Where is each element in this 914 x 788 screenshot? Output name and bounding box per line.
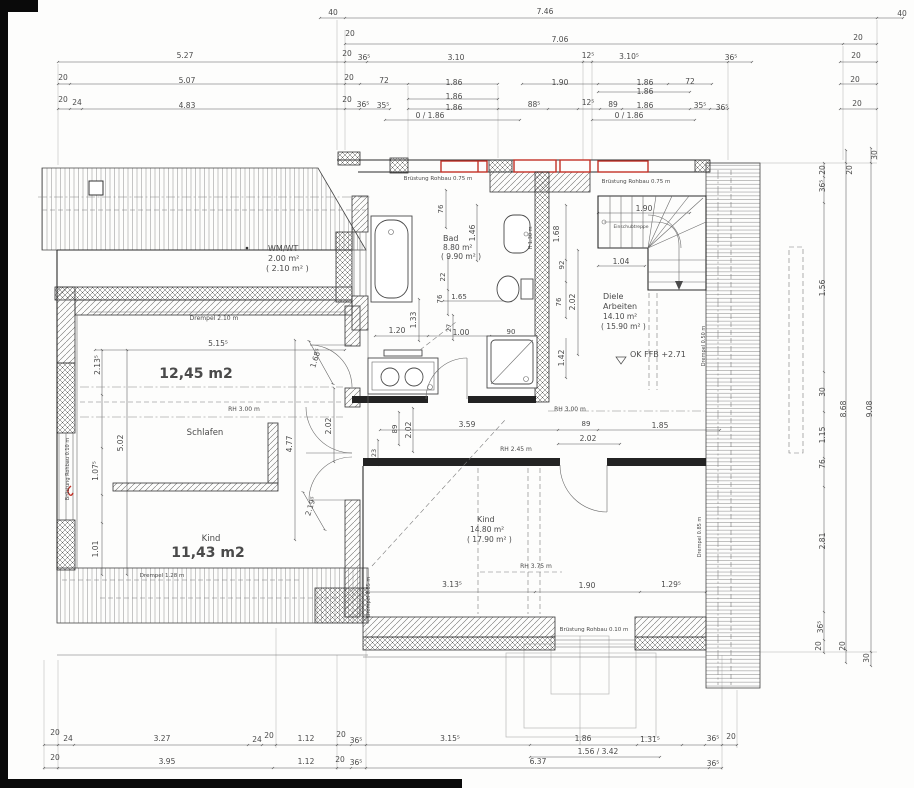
room-area-gross-kind-right: ( 17.90 m² )	[467, 535, 512, 544]
note-bruestung-010-left: Brüstung Rohbau 0.10 m	[65, 438, 71, 501]
room-area-gross-wmwt: ( 2.10 m² )	[266, 264, 309, 273]
dim-746: 7.46	[537, 7, 554, 16]
dim-190: 1.90	[579, 581, 596, 590]
note-bruestung-075-left: Brüstung Rohbau 0.75 m	[404, 176, 473, 182]
room-label-kind-right: Kind	[477, 515, 495, 524]
chimney	[89, 181, 103, 195]
dim-72: 72	[685, 77, 695, 86]
dim-365: 36⁵	[707, 734, 720, 743]
dim-100: 1.00	[453, 328, 470, 337]
dim-3155: 3.15⁵	[440, 734, 460, 743]
dim-125: 12⁵	[582, 51, 595, 60]
dim-30: 30	[818, 387, 827, 397]
dim-112: 1.12	[298, 757, 315, 766]
roof-band-top-left	[42, 168, 366, 250]
dim-190: 1.90	[552, 78, 569, 87]
dim-310: 3.10	[448, 53, 465, 62]
dim-92: 92	[558, 261, 566, 270]
dim-20: 20	[852, 99, 862, 108]
dim-133: 1.33	[409, 311, 418, 328]
dim-20: 20	[342, 49, 352, 58]
dim-355: 35⁵	[377, 101, 390, 110]
dim-186: 1.86	[637, 101, 654, 110]
dim-190-stair: 1.90	[636, 204, 653, 213]
dim-146: 1.46	[468, 224, 477, 241]
dim-868: 8.68	[839, 400, 848, 417]
note-drempel-210: Drempel 2.10 m	[190, 315, 239, 322]
note-drempel-085-left: Drempel 0.85 m	[366, 577, 372, 618]
bathtub	[371, 216, 412, 302]
level-annotation: OK FFB +2.71	[630, 350, 686, 359]
dim-76: 76	[436, 294, 444, 303]
dim-20: 20	[853, 33, 863, 42]
dim-142: 1.42	[557, 349, 566, 366]
dim-20: 20	[344, 73, 354, 82]
dim-2135: 2.13⁵	[93, 355, 102, 375]
dim-186: 1.86	[446, 92, 463, 101]
dim-3105: 3.10⁵	[619, 52, 639, 61]
washbasin	[504, 215, 530, 253]
dim-202: 2.02	[580, 434, 597, 443]
dim-365: 36⁵	[350, 758, 363, 767]
dim-30: 30	[870, 150, 879, 160]
dim-3135: 3.13⁵	[442, 580, 462, 589]
dim-365: 36⁵	[357, 100, 370, 109]
dim-186: 1.86	[575, 734, 592, 743]
dim-20: 20	[264, 731, 274, 740]
dim-20: 20	[335, 755, 345, 764]
room-label-arbeiten: Arbeiten	[603, 302, 637, 311]
dim-20: 20	[342, 95, 352, 104]
dim-327: 3.27	[154, 734, 171, 743]
dim-22: 22	[439, 273, 447, 282]
dim-202: 2.02	[404, 421, 413, 438]
room-area-gross-bad: ( 9.90 m² )	[441, 252, 481, 261]
dim-1075: 1.07⁵	[91, 461, 100, 481]
dim-365: 36⁵	[358, 53, 371, 62]
dim-89: 89	[391, 425, 399, 434]
dim-20: 20	[845, 165, 854, 175]
dim-156-342: 1.56 / 3.42	[578, 747, 619, 756]
dim-112: 1.12	[298, 734, 315, 743]
dim-186: 1.86	[446, 78, 463, 87]
dim-5155: 5.15⁵	[208, 339, 228, 348]
dim-20: 20	[814, 641, 823, 651]
dim-156: 1.56	[818, 279, 827, 296]
dim-186: 1.86	[637, 87, 654, 96]
dim-477: 4.77	[285, 435, 294, 452]
dim-101: 1.01	[91, 540, 100, 557]
dim-24: 24	[252, 735, 262, 744]
room-label-wmwt: WM/WT	[268, 244, 298, 253]
note-drempel-128: Drempel 1.28 m	[140, 573, 185, 579]
dim-165: 1.65	[451, 293, 467, 301]
dim-507: 5.07	[179, 76, 196, 85]
dim-1295: 1.29⁵	[661, 580, 681, 589]
dim-20: 20	[345, 29, 355, 38]
dim-202: 2.02	[324, 417, 333, 434]
dim-120: 1.20	[389, 326, 406, 335]
dim-365: 36⁵	[818, 180, 827, 193]
dim-89: 89	[582, 420, 591, 428]
dim-115: 1.15	[818, 426, 827, 443]
dim-76: 76	[818, 459, 827, 469]
note-drempel-050-right: Drempel 0.50 m	[701, 326, 707, 367]
dim-186: 1.86	[637, 78, 654, 87]
dim-89: 89	[608, 100, 618, 109]
dim-72: 72	[379, 76, 389, 85]
room-label-diele: Diele	[603, 292, 624, 301]
dim-24: 24	[72, 98, 82, 107]
room-label-kind-left: Kind	[202, 534, 221, 544]
dim-20: 20	[336, 730, 346, 739]
room-area-kind-right: 14.80 m²	[470, 525, 504, 534]
plan-svg: 407.4640207.06205.272036⁵3.1012⁵3.10⁵36⁵…	[0, 0, 914, 788]
dim-908: 9.08	[865, 400, 874, 417]
room-label-bad: Bad	[443, 234, 458, 243]
note-drempel-085-right: Drempel 0.85 m	[697, 517, 703, 558]
dim-359: 3.59	[459, 420, 476, 429]
wmwt-marker-dot	[246, 247, 249, 250]
dim-30: 30	[862, 653, 871, 663]
dim-76: 76	[437, 204, 445, 213]
dim-483: 4.83	[179, 101, 196, 110]
paper-background	[0, 0, 914, 788]
dim-104: 1.04	[613, 257, 630, 266]
note-rh-300-left: RH 3.00 m	[228, 406, 260, 413]
note-rh-245: RH 2.45 m	[500, 446, 532, 453]
stair-note: Einschubtreppe	[613, 224, 648, 230]
room-label-schlafen: Schlafen	[187, 428, 224, 438]
dim-20: 20	[838, 641, 847, 651]
dim-365: 36⁵	[725, 53, 738, 62]
dim-24: 24	[63, 734, 73, 743]
dim-125: 12⁵	[582, 98, 595, 107]
dim-885: 88⁵	[528, 100, 541, 109]
dim-637: 6.37	[530, 757, 547, 766]
dim-186: 1.86	[446, 103, 463, 112]
note-rh-375: RH 3.75 m	[520, 563, 552, 570]
shower	[487, 336, 537, 388]
room-area-wmwt: 2.00 m²	[268, 254, 299, 263]
dim-20: 20	[50, 728, 60, 737]
dim-527: 5.27	[177, 51, 194, 60]
dim-502: 5.02	[116, 434, 125, 451]
dim-1315: 1.31⁵	[640, 735, 660, 744]
dim-90: 90	[507, 328, 516, 336]
dim-355: 35⁵	[694, 101, 707, 110]
dim-23: 23	[370, 449, 378, 457]
dim-168: 1.68	[552, 225, 561, 242]
dim-185: 1.85	[652, 421, 669, 430]
dim-365: 36⁵	[816, 621, 825, 634]
dim-20: 20	[58, 95, 68, 104]
dim-20: 20	[851, 51, 861, 60]
dim-40-top-right: 40	[897, 9, 907, 18]
note-bruestung-075-right: Brüstung Rohbau 0.75 m	[602, 179, 671, 185]
room-area-bad: 8.80 m²	[443, 243, 472, 252]
dim-40-top-left: 40	[328, 8, 338, 17]
dim-20: 20	[726, 732, 736, 741]
room-area-gross-diele: ( 15.90 m² )	[601, 322, 646, 331]
note-h-130: H 1.30 m	[528, 226, 534, 249]
dim-395: 3.95	[159, 757, 176, 766]
dim-20: 20	[50, 753, 60, 762]
dim-281: 2.81	[818, 532, 827, 549]
dim-706: 7.06	[552, 35, 569, 44]
dim-202: 2.02	[568, 293, 577, 310]
dim-0-186: 0 / 1.86	[615, 111, 644, 120]
area-annotation-kind: 11,43 m2	[171, 545, 245, 561]
floor-plan-page: 407.4640207.06205.272036⁵3.1012⁵3.10⁵36⁵…	[0, 0, 914, 788]
dim-365: 36⁵	[707, 759, 720, 768]
dim-20: 20	[850, 75, 860, 84]
dim-0-186: 0 / 1.86	[416, 111, 445, 120]
dim-365: 36⁵	[716, 103, 729, 112]
dim-76: 76	[555, 297, 563, 306]
area-annotation-schlafen: 12,45 m2	[159, 366, 233, 382]
toilet	[497, 276, 533, 302]
note-rh-300-right: RH 3.00 m	[554, 406, 586, 413]
dim-20: 20	[58, 73, 68, 82]
dim-365: 36⁵	[350, 736, 363, 745]
roof-band-right	[706, 163, 760, 688]
note-bruestung-010-bottom: Brüstung Rohbau 0.10 m	[560, 627, 629, 633]
dim-20: 20	[818, 165, 827, 175]
room-area-diele: 14.10 m²	[603, 312, 637, 321]
